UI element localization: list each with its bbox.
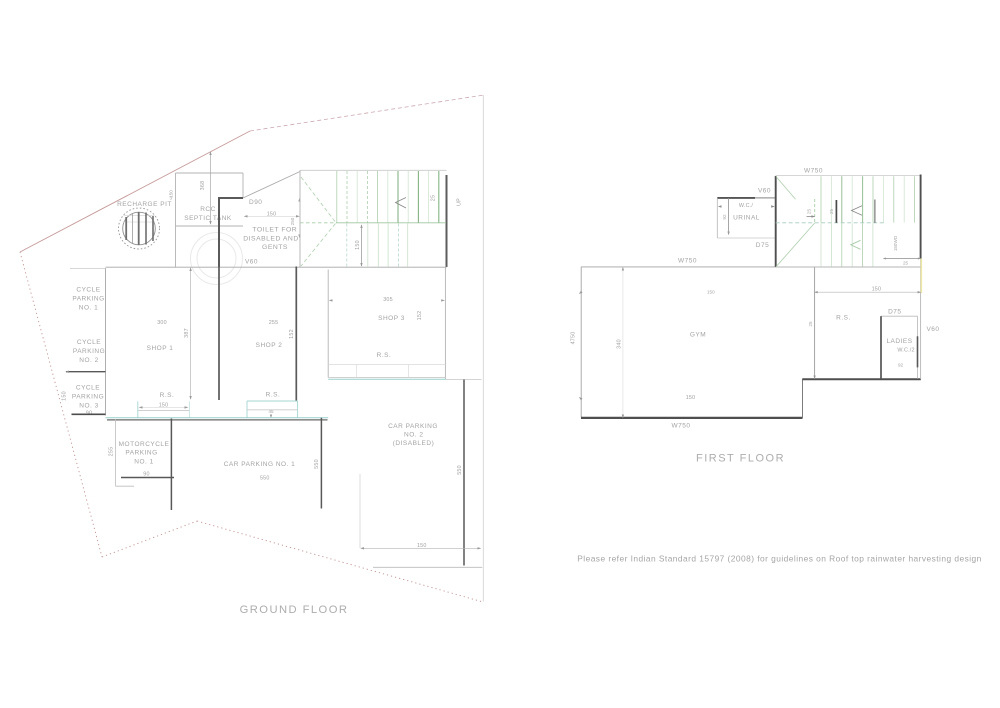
svg-text:340: 340 [616, 339, 622, 349]
svg-text:NO. 3: NO. 3 [79, 403, 98, 410]
svg-text:305: 305 [383, 297, 393, 303]
svg-text:SEPTIC TANK: SEPTIC TANK [184, 215, 232, 222]
svg-text:GENTS: GENTS [262, 244, 288, 251]
svg-text:25: 25 [808, 321, 813, 327]
svg-text:CYCLE: CYCLE [77, 339, 101, 346]
svg-text:TOILET FOR: TOILET FOR [252, 227, 297, 234]
svg-text:NO. 1: NO. 1 [79, 305, 98, 312]
svg-text:SHOP 1: SHOP 1 [147, 345, 174, 352]
svg-text:NO. 2: NO. 2 [404, 432, 423, 439]
svg-text:368: 368 [200, 181, 206, 191]
svg-text:550: 550 [457, 465, 463, 475]
svg-text:150: 150 [707, 290, 715, 295]
svg-text:152: 152 [417, 311, 423, 321]
svg-text:25: 25 [903, 261, 909, 266]
svg-text:D75: D75 [888, 309, 901, 316]
svg-text:45: 45 [268, 409, 274, 414]
svg-text:DISABLED AND: DISABLED AND [243, 235, 298, 242]
svg-text:CAR PARKING: CAR PARKING [388, 423, 438, 430]
svg-text:25: 25 [829, 209, 834, 215]
svg-text:250: 250 [290, 217, 295, 225]
svg-text:R.S.: R.S. [266, 392, 281, 399]
svg-text:URINAL: URINAL [733, 215, 760, 222]
svg-text:4750: 4750 [571, 332, 577, 345]
svg-text:W750: W750 [804, 168, 823, 175]
svg-text:PARKING: PARKING [125, 450, 157, 457]
svg-text:SHOP 2: SHOP 2 [256, 342, 283, 349]
svg-text:LADIES: LADIES [886, 338, 912, 345]
svg-text:150: 150 [686, 395, 696, 401]
svg-text:300: 300 [157, 320, 167, 326]
svg-text:V60: V60 [926, 326, 939, 333]
svg-text:150: 150 [267, 211, 277, 217]
svg-text:RCC: RCC [200, 206, 216, 213]
svg-text:CAR PARKING NO. 1: CAR PARKING NO. 1 [224, 461, 296, 468]
svg-text:W750: W750 [672, 423, 691, 430]
svg-text:90: 90 [143, 472, 149, 478]
svg-text:NO. 2: NO. 2 [79, 357, 98, 364]
svg-text:152: 152 [289, 329, 295, 339]
svg-text:D90: D90 [249, 199, 262, 206]
svg-text:W.C./2: W.C./2 [897, 348, 914, 354]
svg-text:V60: V60 [758, 188, 771, 195]
svg-text:MOTORCYCLE: MOTORCYCLE [119, 441, 170, 448]
svg-text:150: 150 [169, 190, 174, 198]
svg-text:FIRST FLOOR: FIRST FLOOR [696, 453, 785, 465]
svg-text:150: 150 [62, 391, 68, 401]
svg-text:W.C./: W.C./ [739, 203, 753, 209]
svg-text:GROUND FLOOR: GROUND FLOOR [240, 604, 349, 616]
svg-text:UP: UP [457, 198, 463, 206]
svg-text:V60: V60 [245, 259, 258, 266]
svg-text:PARKING: PARKING [72, 296, 104, 303]
svg-text:25: 25 [431, 195, 437, 201]
svg-text:GYM: GYM [690, 332, 706, 339]
svg-text:R.S.: R.S. [377, 352, 392, 359]
svg-text:255: 255 [269, 320, 279, 326]
svg-text:R.S.: R.S. [160, 392, 175, 399]
svg-text:550: 550 [314, 459, 320, 469]
svg-text:150: 150 [159, 402, 169, 408]
svg-text:CYCLE: CYCLE [76, 385, 100, 392]
svg-text:92: 92 [898, 363, 904, 368]
svg-text:RECHARGE PIT: RECHARGE PIT [117, 201, 172, 208]
svg-text:R.S.: R.S. [836, 315, 851, 322]
svg-text:PARKING: PARKING [73, 348, 105, 355]
svg-text:25: 25 [807, 209, 812, 215]
svg-text:92: 92 [722, 214, 727, 220]
svg-text:550: 550 [260, 476, 270, 482]
svg-text:CYCLE: CYCLE [76, 287, 100, 294]
svg-text:Please refer Indian Standard 1: Please refer Indian Standard 15797 (2008… [577, 554, 982, 564]
svg-text:255: 255 [109, 447, 115, 457]
svg-text:SHOP 3: SHOP 3 [378, 315, 405, 322]
svg-text:D75: D75 [756, 242, 769, 249]
svg-text:W750: W750 [678, 258, 697, 265]
svg-text:(DISABLED): (DISABLED) [393, 440, 434, 447]
svg-text:150: 150 [417, 543, 427, 549]
svg-text:150: 150 [872, 287, 882, 293]
svg-text:387: 387 [184, 328, 190, 338]
svg-text:PARKING: PARKING [72, 394, 104, 401]
svg-text:150: 150 [355, 240, 361, 250]
svg-text:NO. 1: NO. 1 [134, 459, 153, 466]
svg-text:150WD: 150WD [893, 235, 898, 251]
